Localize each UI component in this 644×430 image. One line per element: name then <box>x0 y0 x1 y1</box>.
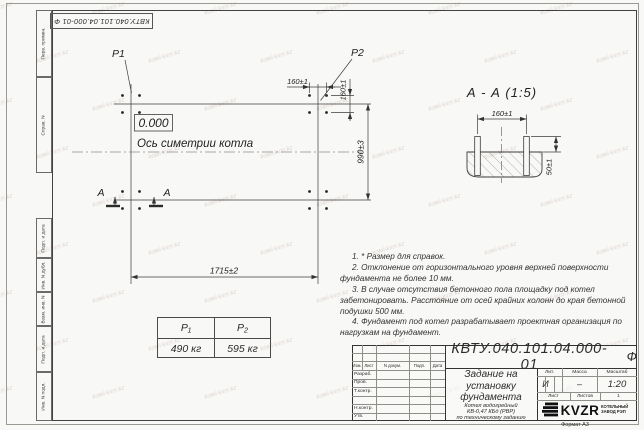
title-block-line <box>430 345 431 421</box>
dim-bolt-x-text: 160±1 <box>287 77 308 86</box>
kvzr-logo-text: KVZR <box>560 400 600 420</box>
sheets-value: 1 <box>600 392 637 400</box>
scale-header: Масштаб <box>597 368 637 376</box>
format-label: Формат А3 <box>540 422 610 429</box>
lit-header: Лит. <box>537 368 562 376</box>
mass-header: Масса <box>562 368 597 376</box>
scale-value: 1:20 <box>597 376 637 392</box>
section-dim-bolt-spacing-text: 160±1 <box>492 109 513 118</box>
note-1: 1. * Размер для справок. <box>340 252 630 263</box>
sign-row-prov: Пров. <box>353 379 376 388</box>
plan-axis-lines <box>114 84 371 284</box>
p1-leader-line <box>125 60 132 93</box>
sheets-label: Листов <box>570 392 600 400</box>
section-dim-protrusion <box>531 137 561 153</box>
drawing-sheet: kotel-kvzr.kzkotel-kvzr.kzkotel-kvzr.kzk… <box>0 0 644 430</box>
dim-bolt-y-text: 160±1 <box>339 80 348 101</box>
load-table-value-p2: 595 кг <box>215 339 270 358</box>
sign-row-tkontr: Т.контр. <box>353 387 376 396</box>
kvzr-logo-icon <box>542 402 559 418</box>
rev-header-list: Лист <box>362 361 376 370</box>
sign-row-utv: Утв. <box>353 413 376 422</box>
rev-header-podp: Подп. <box>409 361 430 370</box>
rev-header-data: Дата <box>430 361 445 370</box>
title-block-line <box>409 345 410 421</box>
load-table-header-p2: P₂ <box>215 318 270 338</box>
note-4: 4. Фундамент под котел разрабатывает про… <box>340 317 630 339</box>
product-description: Котел водогрейный КВ-0,47 КБд (РВР) по т… <box>445 404 537 421</box>
load-table-header-p1: P₁ <box>158 318 215 338</box>
title-block-line <box>352 353 445 354</box>
doc-title-line: Задание на <box>445 369 537 381</box>
section-title: А - А (1:5) <box>466 85 537 100</box>
load-table: P₁ P₂ 490 кг 595 кг <box>157 317 271 358</box>
logo-caption-line: ЗАВОД РЭП <box>601 410 635 415</box>
section-cut-marks <box>106 197 163 206</box>
kvzr-logo-caption: КОТЕЛЬНЫЙ ЗАВОД РЭП <box>601 405 635 415</box>
title-block-line <box>376 345 377 421</box>
note-3: 3. В случае отсутствия бетонного пола пл… <box>340 285 630 318</box>
doc-title-line: установку <box>445 381 537 393</box>
doc-number-cell: КВТУ.040.101.04.000-01 Ф <box>445 345 637 368</box>
lit-value: И <box>537 376 554 392</box>
rev-header-izm: Изм. <box>352 361 362 370</box>
sign-row-empty <box>353 396 376 405</box>
product-line: по техническому заданию <box>445 416 537 422</box>
doc-title: Задание на установку фундамента <box>445 369 537 404</box>
doc-suffix: Ф <box>627 349 637 364</box>
sign-row-razrab: Разраб. <box>353 370 376 379</box>
sheet-label: Лист <box>537 392 570 400</box>
note-2: 2. Отклонение от горизонтального уровня … <box>340 263 630 285</box>
section-mark-letter-left: А <box>96 187 104 199</box>
level-mark-text: 0.000 <box>138 116 168 130</box>
dim-length-text: 1715±2 <box>210 266 239 276</box>
dim-width-text: 990±3 <box>356 140 366 164</box>
section-mark-letter-right: А <box>162 187 170 199</box>
load-table-value-p1: 490 кг <box>158 339 215 358</box>
mass-value: – <box>562 376 597 392</box>
sign-row-nkontr: Н.контр. <box>353 404 376 413</box>
symmetry-axis-label: Ось симетрии котла <box>137 138 253 150</box>
section-dim-protrusion-text: 50±1 <box>545 159 554 176</box>
p1-label: P1 <box>112 48 125 60</box>
rev-header-dokum: N докум. <box>376 361 409 370</box>
p2-label: P2 <box>351 47 364 59</box>
notes-block: 1. * Размер для справок. 2. Отклонение о… <box>340 252 630 339</box>
